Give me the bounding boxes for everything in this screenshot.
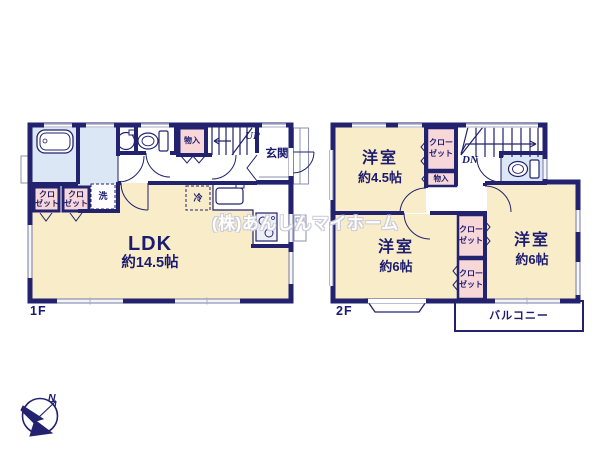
label-closet1f-a1: クロ bbox=[39, 191, 55, 199]
label-closet2f-t2: ゼット bbox=[429, 150, 453, 158]
watermark-text: (株)あんしんマイホーム bbox=[212, 215, 399, 232]
label-closet2f-m2: ゼット bbox=[459, 237, 483, 245]
floorplan-image: LDK 約14.5帖 玄関 物入 UP 洗 冷 クロ ゼット クロ ゼット 1F… bbox=[0, 0, 600, 449]
entrance-porch bbox=[294, 128, 309, 184]
compass-icon bbox=[21, 399, 58, 437]
label-ldk: LDK bbox=[128, 234, 172, 254]
label-ldk-size: 約14.5帖 bbox=[121, 256, 178, 271]
label-room6l: 洋室 bbox=[378, 240, 414, 256]
label-room6r: 洋室 bbox=[514, 233, 550, 249]
label-storage-2f: 物入 bbox=[434, 175, 449, 183]
label-closet2f-t1: クロー bbox=[429, 139, 453, 147]
bathtub-icon bbox=[37, 130, 73, 153]
floor2-label: 2F bbox=[336, 305, 353, 318]
label-closet1f-b1: クロ bbox=[68, 191, 84, 199]
floor1-label: 1F bbox=[30, 305, 47, 318]
label-stairs-up: UP bbox=[245, 131, 260, 142]
label-genkan: 玄関 bbox=[266, 149, 289, 161]
label-closet2f-m1: クロー bbox=[459, 226, 483, 234]
closet-2f-bot bbox=[458, 259, 485, 299]
label-fridge: 冷 bbox=[193, 194, 202, 203]
label-room45: 洋室 bbox=[362, 151, 398, 167]
label-room6l-size: 約6帖 bbox=[379, 260, 412, 273]
label-closet1f-b2: ゼット bbox=[64, 200, 88, 208]
label-closet1f-a2: ゼット bbox=[35, 200, 59, 208]
washbasin-icon bbox=[118, 130, 136, 150]
toilet-icon-1f bbox=[138, 131, 168, 151]
label-room45-size: 約4.5帖 bbox=[358, 171, 402, 184]
label-closet2f-b2: ゼット bbox=[459, 281, 483, 289]
toilet-icon-2f bbox=[509, 160, 540, 178]
label-laundry: 洗 bbox=[98, 192, 107, 201]
compass-north-label: N bbox=[48, 393, 56, 404]
label-storage-1f: 物入 bbox=[184, 137, 200, 145]
label-closet2f-b1: クロー bbox=[459, 270, 483, 278]
label-balcony: バルコニー bbox=[489, 311, 549, 322]
label-room6r-size: 約6帖 bbox=[515, 253, 548, 266]
label-stairs-dn: DN bbox=[462, 155, 478, 166]
